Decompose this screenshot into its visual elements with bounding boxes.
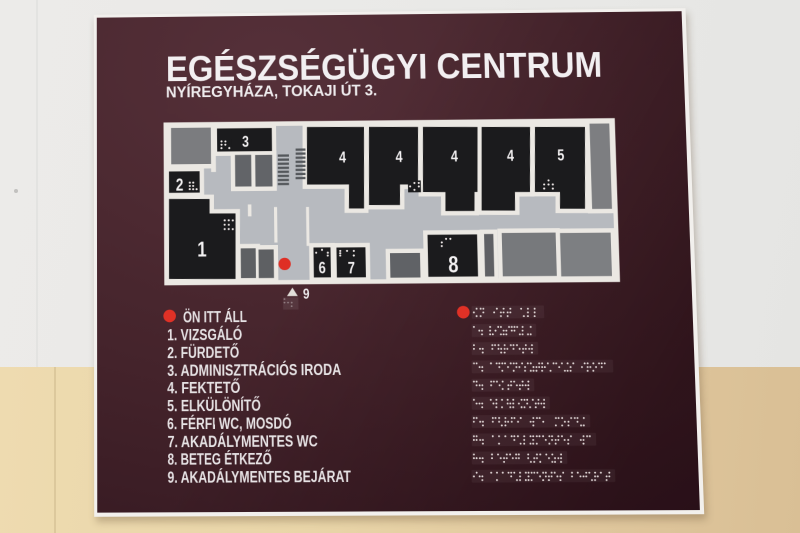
svg-text:4: 4 <box>507 146 515 164</box>
svg-text:1: 1 <box>197 238 207 262</box>
svg-text:4: 4 <box>339 148 346 166</box>
svg-text:4: 4 <box>395 147 403 165</box>
svg-text:9. AKADÁLYMENTES BEJÁRAT: 9. AKADÁLYMENTES BEJÁRAT <box>167 466 351 487</box>
svg-text:7. AKADÁLYMENTES WC: 7. AKADÁLYMENTES WC <box>168 431 318 452</box>
svg-text:2. FÜRDETŐ: 2. FÜRDETŐ <box>167 342 239 362</box>
svg-text:EGÉSZSÉGÜGYI CENTRUM: EGÉSZSÉGÜGYI CENTRUM <box>166 44 603 89</box>
svg-text:6: 6 <box>318 259 325 277</box>
svg-text:5: 5 <box>557 146 565 164</box>
svg-text:2: 2 <box>176 176 184 195</box>
svg-text:7: 7 <box>348 260 356 278</box>
svg-text:3. ADMINISZTRÁCIÓS IRODA: 3. ADMINISZTRÁCIÓS IRODA <box>167 359 341 380</box>
svg-text:ÖN ITT ÁLL: ÖN ITT ÁLL <box>183 306 247 326</box>
svg-text:4. FEKTETŐ: 4. FEKTETŐ <box>167 378 240 398</box>
svg-text:3: 3 <box>242 132 249 150</box>
svg-text:8. BETEG ÉTKEZŐ: 8. BETEG ÉTKEZŐ <box>168 449 272 469</box>
svg-text:5. ELKÜLÖNÍTŐ: 5. ELKÜLÖNÍTŐ <box>167 395 261 415</box>
svg-text:9: 9 <box>303 285 310 302</box>
svg-text:6. FÉRFI WC, MOSDÓ: 6. FÉRFI WC, MOSDÓ <box>167 413 292 434</box>
svg-text:8: 8 <box>448 253 459 278</box>
svg-text:4: 4 <box>451 147 459 165</box>
svg-text:1. VIZSGÁLÓ: 1. VIZSGÁLÓ <box>167 324 242 344</box>
svg-text:NYÍREGYHÁZA, TOKAJI ÚT 3.: NYÍREGYHÁZA, TOKAJI ÚT 3. <box>166 81 377 101</box>
